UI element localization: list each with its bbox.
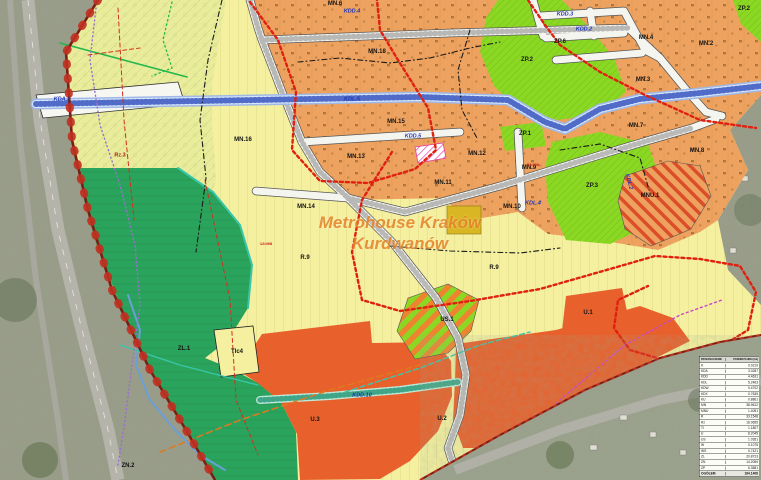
map-vector bbox=[0, 0, 761, 480]
legend-table-inner: PRZEZNACZENIEPOWIERZCHNIA [ha]K0.0219KDA… bbox=[699, 356, 759, 477]
legend-row: TI1.1807 bbox=[700, 425, 760, 431]
legend-row: Rz16.0655 bbox=[700, 419, 760, 425]
parcel-tic4 bbox=[214, 326, 259, 377]
legend-row: MNU1.4051 bbox=[700, 408, 760, 414]
legend-row: KDL5.2463 bbox=[700, 380, 760, 386]
legend-row: R33.1548 bbox=[700, 414, 760, 420]
legend-row: KDX0.7635 bbox=[700, 391, 760, 397]
legend-row: ZL20.8723 bbox=[700, 454, 760, 460]
map-canvas[interactable]: MN.6MN.18MN.16MN.15MN.13MN.12MN.11MN.14M… bbox=[0, 0, 761, 480]
legend-row: WS0.7421 bbox=[700, 448, 760, 454]
legend-row: W0.1075 bbox=[700, 442, 760, 448]
legend-row: KDA3.0287 bbox=[700, 368, 760, 374]
legend-row: ZP6.3581 bbox=[700, 465, 760, 471]
legend-row: OGÓŁEM184.1408 bbox=[700, 471, 760, 477]
legend-row: K0.0219 bbox=[700, 363, 760, 369]
legend-row: ZN14.2059 bbox=[700, 459, 760, 465]
legend-row: KU0.8861 bbox=[700, 397, 760, 403]
legend-row: US1.0351 bbox=[700, 437, 760, 443]
legend-row: KDW0.4702 bbox=[700, 385, 760, 391]
legend-row: U8.2045 bbox=[700, 431, 760, 437]
mustard-box bbox=[447, 206, 481, 234]
legend-table: PRZEZNACZENIEPOWIERZCHNIA [ha]K0.0219KDA… bbox=[699, 356, 759, 478]
legend-row: KDD4.4631 bbox=[700, 374, 760, 380]
legend-row: MN38.9612 bbox=[700, 402, 760, 408]
